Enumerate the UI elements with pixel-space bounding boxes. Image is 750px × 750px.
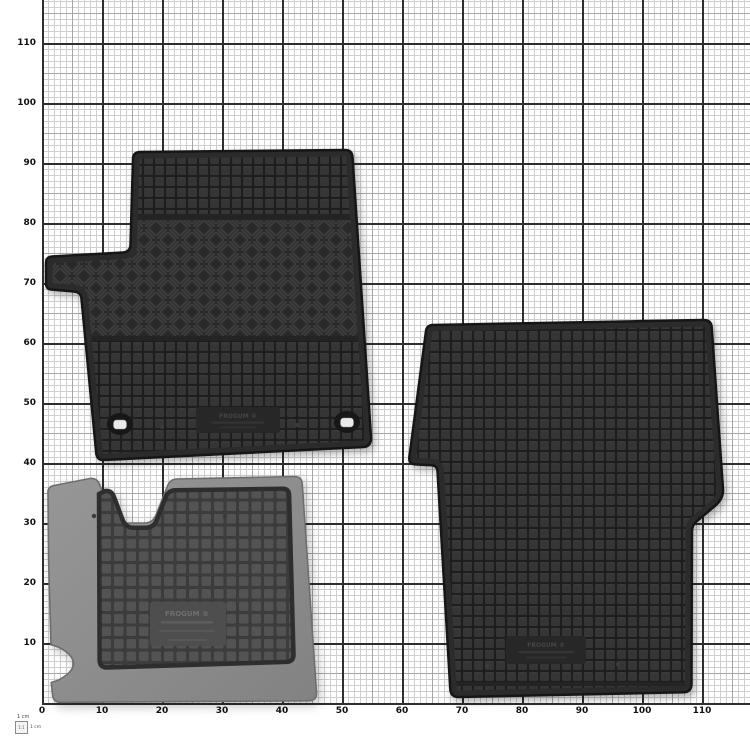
rear-mat-brand-text: FROGUM ®	[527, 642, 565, 649]
underside-mat-brand-text: FROGUM ®	[165, 610, 209, 618]
underside-mat-brand-plate: FROGUM ®	[150, 602, 226, 646]
mats-photo: FROGUM ® FROGUM ® FROGUM ®	[0, 0, 750, 750]
front-mat-brand-plate: FROGUM ®	[196, 407, 280, 433]
scale-ratio-box: 1:1	[15, 721, 28, 734]
rear-mat: FROGUM ®	[400, 312, 730, 702]
front-mat-fixing-hole-right	[334, 411, 360, 433]
rear-mat-stud	[616, 662, 620, 666]
front-mat-stud	[160, 425, 164, 429]
front-mat: FROGUM ®	[40, 140, 385, 465]
scale-legend: 1 cm 1:1 1 cm	[15, 714, 41, 734]
front-mat-brand-text: FROGUM ®	[219, 413, 257, 420]
underside-mat: FROGUM ®	[48, 476, 317, 702]
underside-mat-stud	[92, 514, 96, 518]
rear-mat-brand-plate: FROGUM ®	[506, 636, 586, 664]
front-mat-stud	[295, 423, 299, 427]
scale-legend-title: 1 cm	[17, 714, 41, 720]
front-mat-fixing-hole-left	[107, 413, 133, 435]
scale-unit-label: 1 cm	[30, 725, 41, 730]
rear-mat-stud	[485, 664, 489, 668]
underside-mat-stud	[223, 515, 227, 519]
